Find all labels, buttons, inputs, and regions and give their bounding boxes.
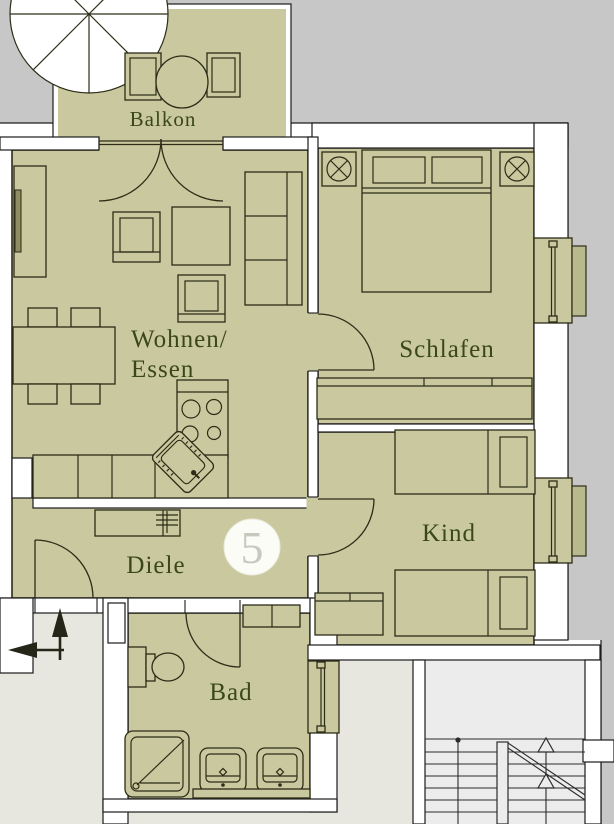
unit-number-badge: 5 [224, 519, 280, 575]
stair-stringer [497, 742, 508, 824]
balcony-table [156, 56, 208, 108]
coffee-table [172, 207, 230, 265]
toilet [146, 653, 184, 681]
kind-label: Kind [422, 520, 476, 547]
unit-number: 5 [241, 522, 264, 573]
nightstand-left [322, 152, 356, 186]
armchair-bottom [178, 275, 225, 322]
washbasin-right [257, 748, 303, 792]
diele-label: Diele [126, 552, 185, 579]
shower [125, 731, 189, 797]
balcony-chair-right [207, 53, 240, 97]
balcony-chair-left [125, 53, 161, 100]
washbasin-left [200, 748, 246, 792]
bad-label: Bad [209, 679, 252, 706]
single-bed-top [395, 430, 535, 494]
handrail-post [455, 737, 460, 742]
bath-cabinet [243, 605, 300, 627]
sofa [245, 172, 302, 305]
nightstand-right [500, 152, 534, 186]
armchair-top [113, 212, 160, 262]
single-bed-bottom [395, 570, 535, 636]
stairwell-window-gap [583, 740, 614, 762]
diele-furniture [95, 510, 180, 536]
shelf-cabinet [14, 166, 46, 277]
balcony-label: Balkon [130, 107, 197, 131]
fridge [12, 458, 32, 498]
vanity-counter [193, 789, 310, 798]
duct-shaft [108, 603, 125, 643]
window-kind [534, 478, 586, 563]
floor-plan-page: Balkon [0, 0, 614, 824]
wardrobe [317, 378, 532, 419]
floor-plan-svg: Balkon [0, 0, 614, 824]
window-schlafen [534, 238, 586, 323]
wohnen-essen-label-line1: Wohnen/ [131, 326, 228, 353]
window-bad [308, 661, 339, 733]
wohnen-essen-label-line2: Essen [131, 356, 194, 383]
dresser [315, 593, 383, 635]
toilet-shelf [128, 647, 146, 687]
double-bed [362, 150, 491, 292]
schlafen-label: Schlafen [399, 336, 494, 363]
